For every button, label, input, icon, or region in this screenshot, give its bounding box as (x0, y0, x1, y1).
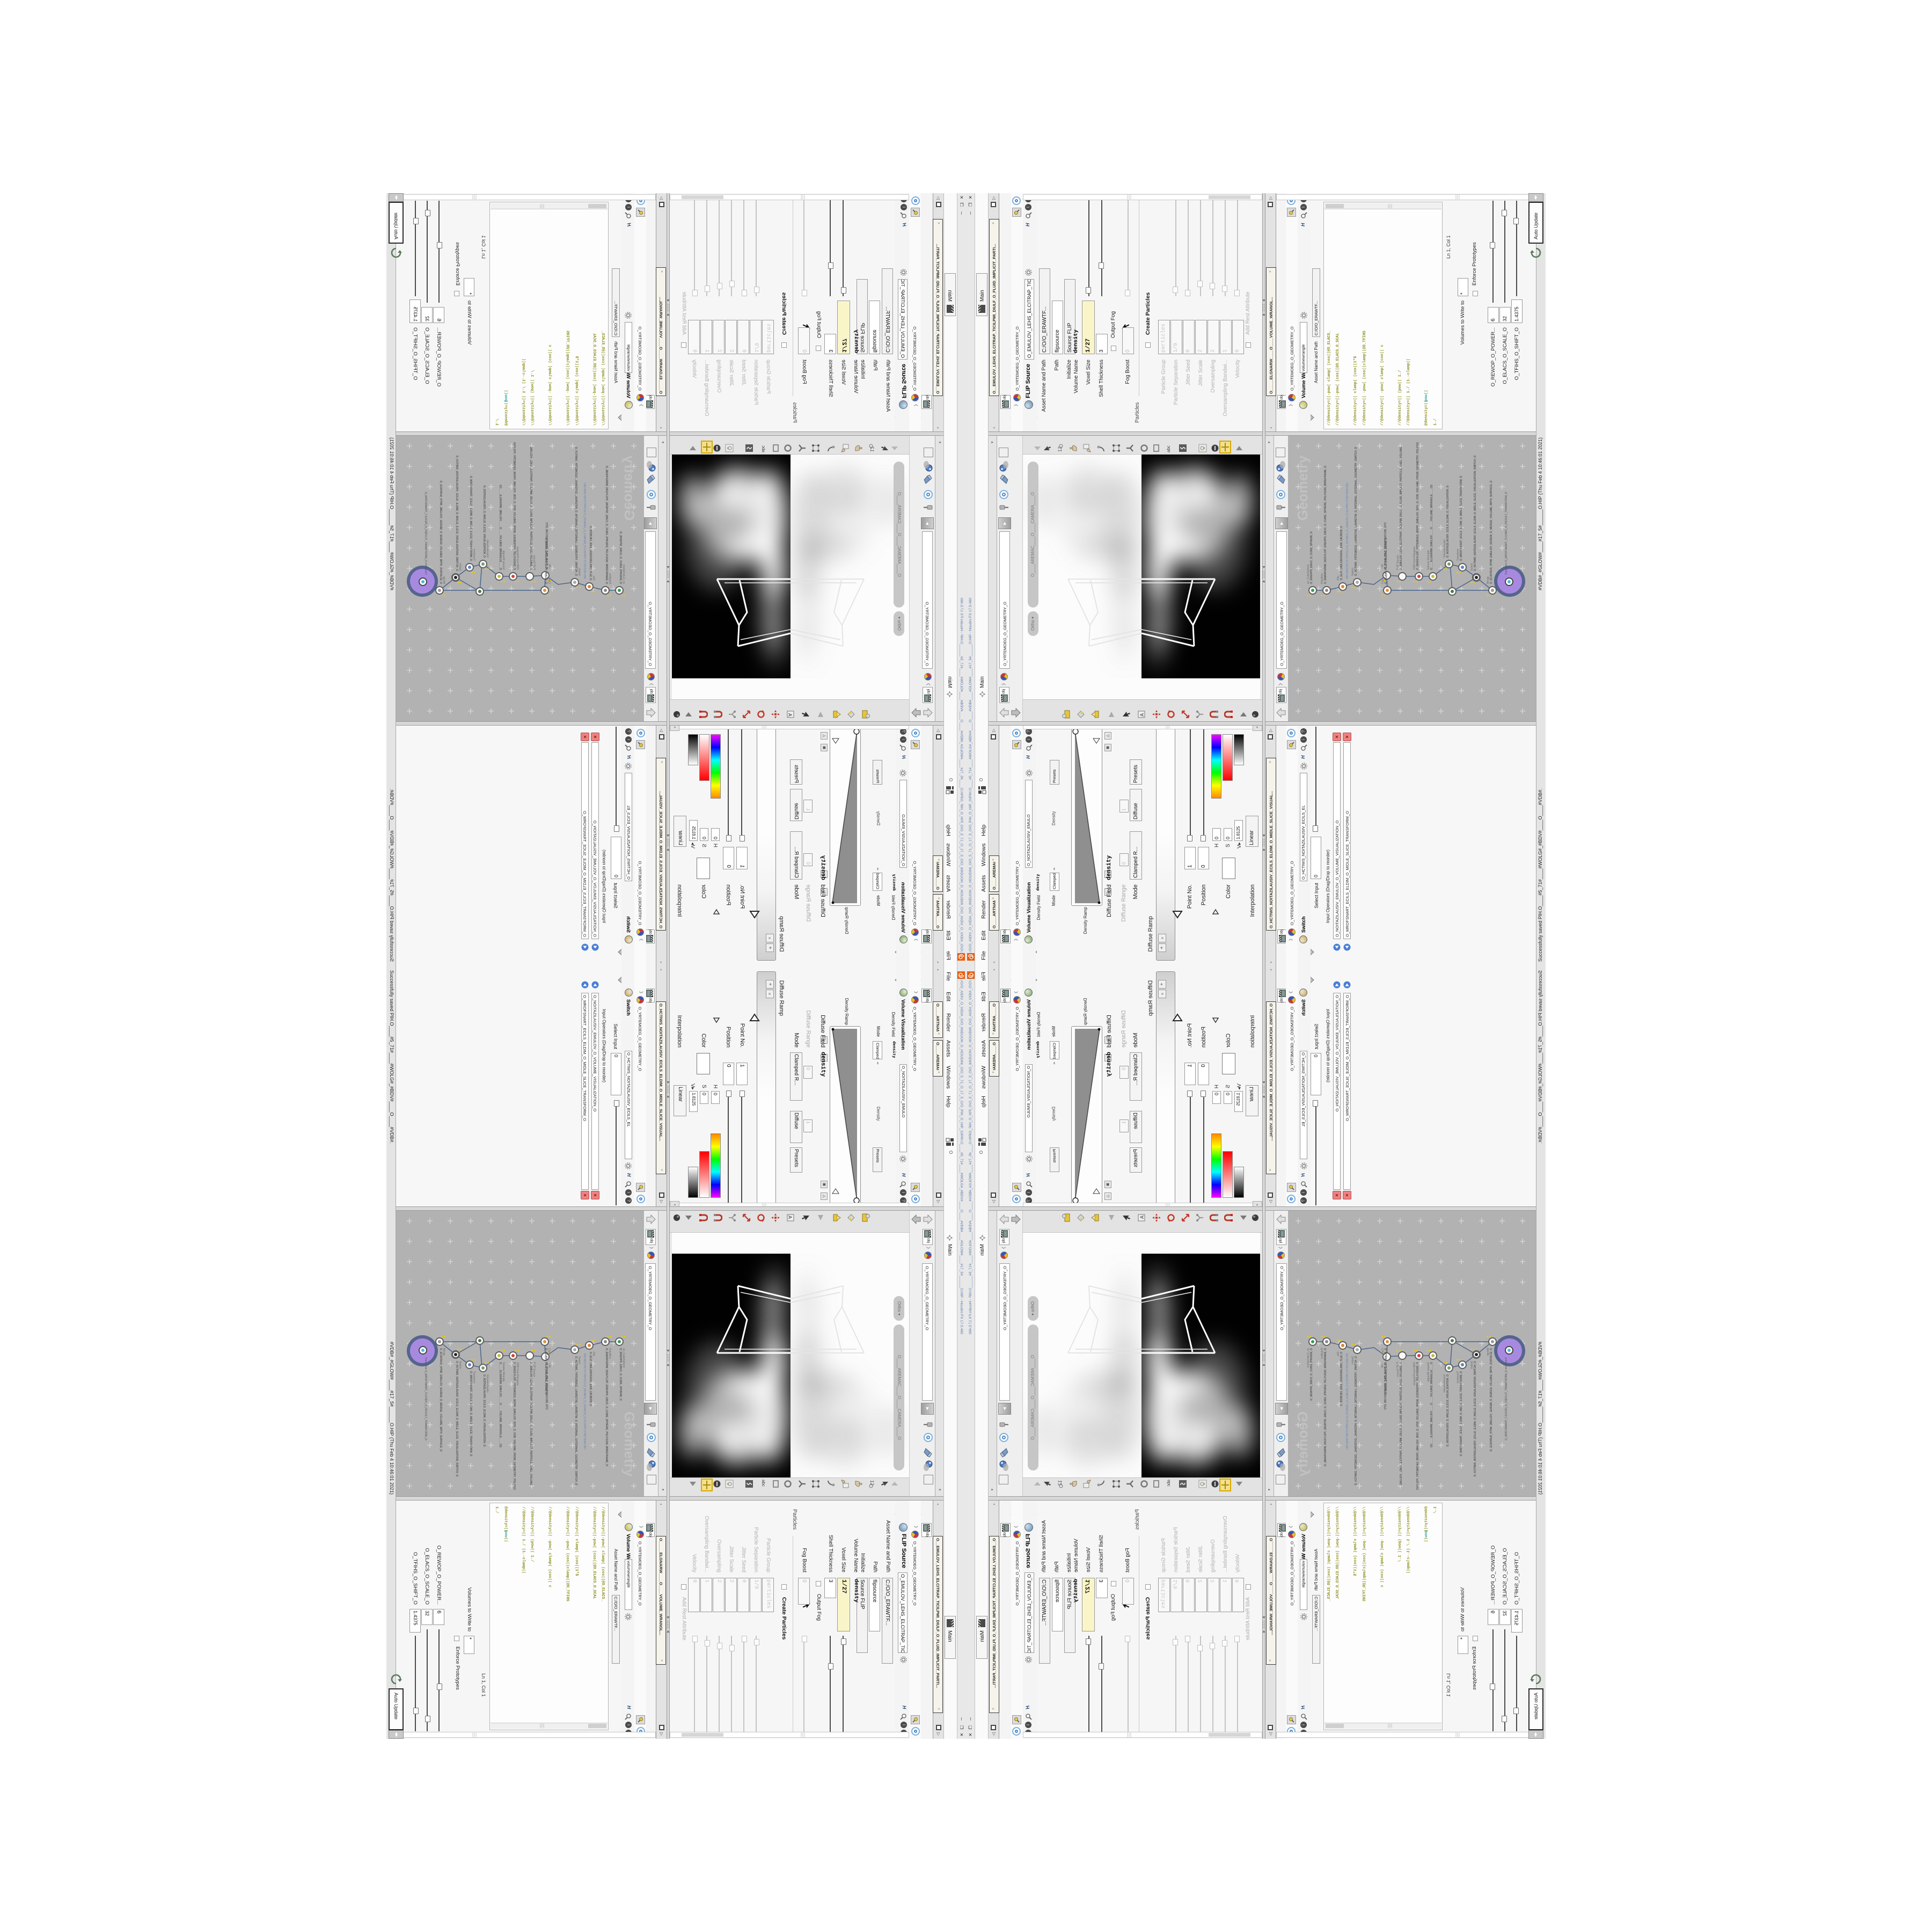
svg-text:abc: abc (761, 1480, 766, 1487)
svg-text:abc: abc (1166, 445, 1171, 452)
svg-text:A: A (787, 713, 793, 716)
svg-text:A: A (1139, 713, 1145, 716)
svg-text:A: A (1139, 1216, 1145, 1219)
svg-text:abc: abc (761, 445, 766, 452)
svg-text:abc: abc (1166, 1480, 1171, 1487)
svg-text:A: A (787, 1216, 793, 1219)
